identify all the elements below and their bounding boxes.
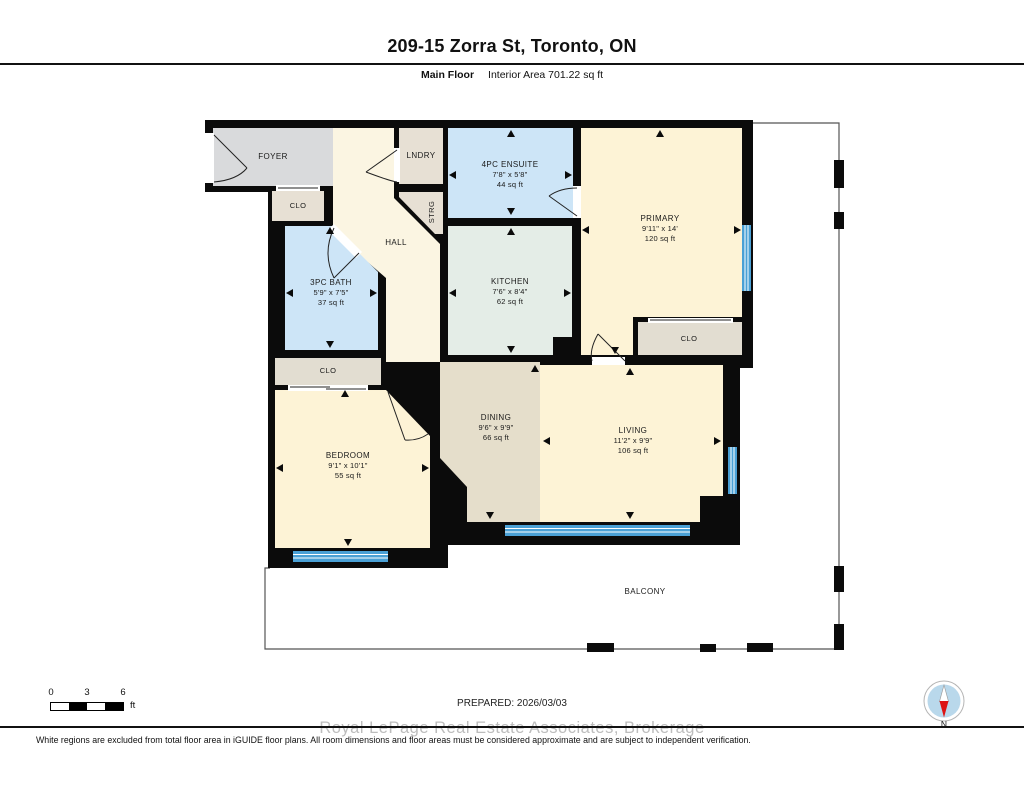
room-label-hall: HALL	[385, 238, 407, 248]
disclaimer-text: White regions are excluded from total fl…	[36, 735, 751, 745]
scale-tick-0: 0	[48, 687, 53, 698]
room-label-clo-foyer: CLO	[290, 201, 307, 211]
scale-tick-3: 3	[84, 687, 89, 698]
room-label-lndry: LNDRY	[407, 151, 436, 161]
floorplan-page: 209-15 Zorra St, Toronto, ON Main FloorI…	[0, 0, 1024, 791]
scale-tick-6: 6	[120, 687, 125, 698]
room-label-foyer: FOYER	[258, 152, 288, 162]
compass-north-label: N	[936, 719, 952, 729]
room-label-bath: 3PC BATH 5'9" x 7'5" 37 sq ft	[310, 278, 352, 308]
room-label-ensuite: 4PC ENSUITE 7'8" x 5'8" 44 sq ft	[482, 160, 539, 190]
floorplan-drawing	[0, 0, 1024, 791]
prepared-date: PREPARED: 2026/03/03	[0, 698, 1024, 709]
room-label-kitchen: KITCHEN 7'6" x 8'4" 62 sq ft	[491, 277, 529, 307]
room-label-strg: STRG	[427, 201, 437, 223]
room-label-primary: PRIMARY 9'11" x 14' 120 sq ft	[640, 214, 679, 244]
room-label-bedroom: BEDROOM 9'1" x 10'1" 55 sq ft	[326, 451, 370, 481]
footer-divider	[0, 726, 1024, 728]
room-label-dining: DINING 9'6" x 9'9" 66 sq ft	[479, 413, 514, 443]
room-label-living: LIVING 11'2" x 9'9" 106 sq ft	[614, 426, 653, 456]
room-label-clo-primary: CLO	[681, 334, 698, 344]
room-label-balcony: BALCONY	[624, 587, 665, 597]
room-label-clo-bedroom: CLO	[320, 366, 337, 376]
